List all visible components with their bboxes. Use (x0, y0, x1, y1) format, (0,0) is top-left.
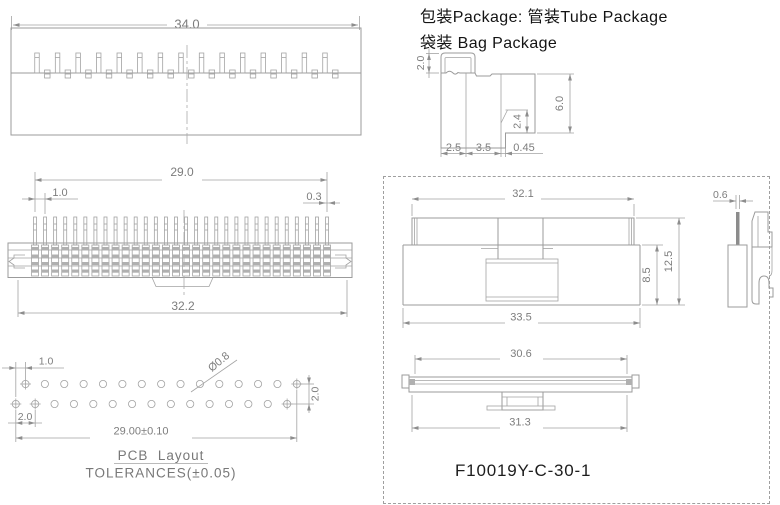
pin-upper (74, 217, 77, 245)
pcb-hole (109, 400, 116, 407)
pin-contact-band (162, 255, 169, 258)
pin-upper (154, 217, 157, 245)
tall-pin (35, 53, 40, 73)
pin-contact-band (32, 262, 39, 265)
pin-upper (285, 217, 288, 245)
pin-upper (44, 217, 47, 245)
pin-contact-band (142, 247, 149, 250)
dim-hole-pitch: 2.0 (18, 411, 33, 423)
tall-pin (220, 53, 225, 73)
pin-upper (104, 217, 107, 245)
pin-contact-band (243, 262, 250, 265)
pin-contact-band (112, 262, 119, 265)
pin-contact-band (203, 262, 210, 265)
dim-arrowhead (568, 74, 572, 81)
dim-arrowhead (13, 23, 20, 27)
pcb-hole (138, 380, 145, 387)
pcb-hole (235, 380, 242, 387)
pin-upper (34, 217, 37, 245)
pin-upper (134, 217, 137, 245)
pin-contact-band (273, 262, 280, 265)
bent-lead (441, 53, 475, 73)
pin-contact-band (102, 262, 109, 265)
pin-contact-band (62, 262, 69, 265)
tall-pin (261, 53, 266, 73)
package-side-view: 2.0 6.0 2.4 2.5 3.5 0.45 (410, 45, 610, 180)
pin-contact-band (213, 255, 220, 258)
front-view-pins (32, 217, 331, 276)
dim-pin-width: 0.3 (306, 191, 321, 203)
pcb-hole (206, 400, 213, 407)
pin-contact-band (72, 255, 79, 258)
pin-contact-band (52, 255, 59, 258)
pin-contact-band (263, 270, 270, 273)
pin-contact-band (32, 255, 39, 258)
pin-upper (124, 217, 127, 245)
pin-contact-band (122, 255, 129, 258)
pin-upper (326, 217, 329, 245)
dim-arrowhead (16, 436, 22, 440)
pin-upper (235, 217, 238, 245)
dim-overall-width: 34.0 (174, 17, 199, 32)
pin-upper (114, 217, 117, 245)
pin-contact-band (213, 262, 220, 265)
pin-contact-band (313, 262, 320, 265)
pcb-hole (51, 400, 58, 407)
pcb-hole (90, 400, 97, 407)
pin-upper (164, 217, 167, 245)
dim-arrowhead (290, 436, 297, 440)
pin-contact-band (293, 262, 300, 265)
pin-contact-band (263, 262, 270, 265)
pcb-hole (245, 400, 252, 407)
pin-upper (225, 217, 228, 245)
pin-contact-band (283, 255, 290, 258)
pin-contact-band (92, 247, 99, 250)
pin-contact-band (142, 270, 149, 273)
tall-pin (117, 53, 122, 73)
pin-contact-band (92, 255, 99, 258)
dim-arrowhead (319, 201, 326, 205)
dim-arrowhead (341, 311, 348, 315)
pin-contact-band (313, 255, 320, 258)
package-text-line2: 袋装 Bag Package (420, 29, 557, 53)
pcb-hole (225, 400, 232, 407)
pin-contact-band (243, 247, 250, 250)
pin-contact-band (223, 262, 230, 265)
pin-contact-band (92, 262, 99, 265)
pin-contact-band (72, 247, 79, 250)
tall-pin (240, 53, 245, 73)
pin-upper (174, 217, 177, 245)
pin-contact-band (52, 262, 59, 265)
tall-pin (323, 53, 328, 73)
pin-contact-band (62, 247, 69, 250)
pin-upper (144, 217, 147, 245)
pin-contact-band (142, 262, 149, 265)
dim-body-width: 32.2 (171, 299, 195, 313)
tall-pin (158, 53, 163, 73)
dim-pin-width: 0.45 (513, 142, 534, 154)
pcb-captions: PCB Layout TOLERANCES(±0.05) (86, 448, 237, 481)
pin-contact-band (152, 247, 159, 250)
pin-contact-band (203, 270, 210, 273)
pin-contact-band (213, 247, 220, 250)
pin-contact-band (203, 255, 210, 258)
pcb-hole (80, 380, 87, 387)
pin-contact-band (42, 262, 49, 265)
bottom-boss (152, 278, 213, 287)
pin-contact-band (162, 262, 169, 265)
pin-contact-band (152, 255, 159, 258)
pin-upper (94, 217, 97, 245)
pin-contact-band (303, 247, 310, 250)
dim-body-height: 6.0 (554, 96, 566, 111)
dim-span-tolerance: 29.00±0.10 (114, 426, 169, 438)
pin-contact-band (273, 247, 280, 250)
tall-pin (179, 53, 184, 73)
dim-span: 29.0 (170, 165, 194, 179)
tall-pin (76, 53, 81, 73)
pin-contact-band (283, 262, 290, 265)
pin-contact-band (223, 255, 230, 258)
top-view-dimension-34: 34.0 (12, 16, 360, 32)
dim-arrowhead (506, 152, 513, 156)
tall-pin (282, 53, 287, 73)
pin-contact-band (52, 247, 59, 250)
tall-pin (55, 53, 60, 73)
pin-contact-band (303, 270, 310, 273)
pin-upper (265, 217, 268, 245)
dim-arrowhead (568, 127, 572, 134)
pin-contact-band (82, 255, 89, 258)
pcb-hole (70, 400, 77, 407)
pin-contact-band (152, 262, 159, 265)
dim-arrowhead (29, 197, 36, 201)
pcb-layout-drawing: 1.0 Ø0.8 2.0 2.0 29.00±0.10 PCB Layout T… (0, 330, 400, 505)
package-text-line1: 包装Package: 管装Tube Package (420, 3, 668, 27)
pcb-layout-caption: PCB Layout (118, 448, 205, 463)
dim-arrowhead (329, 201, 336, 205)
pin-contact-band (183, 255, 190, 258)
pin-contact-band (293, 247, 300, 250)
pin-upper (295, 217, 298, 245)
dim-arrowhead (495, 152, 502, 156)
pin-contact-band (102, 255, 109, 258)
pin-contact-band (62, 255, 69, 258)
pin-contact-band (172, 270, 179, 273)
pcb-hole (274, 380, 281, 387)
tolerance-note: TOLERANCES(±0.05) (86, 466, 237, 481)
pin-contact-band (243, 270, 250, 273)
pin-contact-band (122, 247, 129, 250)
pin-contact-band (253, 255, 260, 258)
pin-contact-band (132, 262, 139, 265)
pin-contact-band (253, 270, 260, 273)
pin-contact-band (253, 247, 260, 250)
pin-contact-band (102, 247, 109, 250)
pin-contact-band (172, 255, 179, 258)
pin-contact-band (162, 247, 169, 250)
pin-upper (275, 217, 278, 245)
pin-contact-band (324, 270, 331, 273)
pin-contact-band (283, 270, 290, 273)
pin-contact-band (193, 247, 200, 250)
pin-contact-band (82, 247, 89, 250)
tall-pin (138, 53, 143, 73)
pin-contact-band (193, 270, 200, 273)
dim-arrowhead (26, 366, 33, 370)
pin-contact-band (233, 247, 240, 250)
pin-contact-band (42, 255, 49, 258)
pin-upper (84, 217, 87, 245)
package-dimensions: 2.0 6.0 2.4 2.5 3.5 0.45 (415, 49, 574, 158)
pin-contact-band (223, 247, 230, 250)
pin-contact-band (132, 255, 139, 258)
pin-upper (54, 217, 57, 245)
pin-contact-band (193, 262, 200, 265)
pin-contact-band (42, 247, 49, 250)
pin-upper (315, 217, 318, 245)
pin-contact-band (132, 247, 139, 250)
pin-contact-band (193, 255, 200, 258)
pin-contact-band (273, 270, 280, 273)
pcb-hole (128, 400, 135, 407)
pcb-hole (187, 400, 194, 407)
dim-arrowhead (427, 54, 431, 61)
pin-upper (305, 217, 308, 245)
dim-arrowhead (460, 152, 467, 156)
pcb-hole (99, 380, 106, 387)
pin-contact-band (203, 247, 210, 250)
pin-upper (215, 217, 218, 245)
dim-arrowhead (321, 178, 328, 182)
pin-contact-band (213, 270, 220, 273)
pcb-hole (254, 380, 261, 387)
dim-arrowhead (525, 110, 529, 117)
pin-contact-band (72, 270, 79, 273)
pin-contact-band (233, 270, 240, 273)
pin-contact-band (172, 247, 179, 250)
dim-arrowhead (352, 23, 359, 27)
pcb-hole (148, 400, 155, 407)
front-dimensions: 29.0 1.0 0.3 32.2 (18, 165, 347, 317)
pin-contact-band (283, 247, 290, 250)
top-view-pins (35, 53, 338, 78)
pin-contact-band (42, 270, 49, 273)
pin-contact-band (223, 270, 230, 273)
pin-upper (185, 217, 188, 245)
pin-contact-band (183, 262, 190, 265)
pin-contact-band (293, 255, 300, 258)
dim-arrowhead (9, 366, 16, 370)
pcb-hole (177, 380, 184, 387)
pin-contact-band (112, 247, 119, 250)
tall-pin (199, 53, 204, 73)
dim-arrowhead (441, 152, 448, 156)
front-view-drawing: 29.0 1.0 0.3 32.2 (0, 150, 400, 330)
pin-upper (255, 217, 258, 245)
pin-contact-band (233, 255, 240, 258)
connector-outline (11, 28, 361, 135)
pin-contact-band (183, 247, 190, 250)
detail-boundary-box (383, 176, 770, 504)
pcb-hole (61, 380, 68, 387)
pin-contact-band (32, 247, 39, 250)
dim-tip-height: 2.4 (512, 114, 524, 129)
pcb-hole (264, 400, 271, 407)
top-view-drawing: 34.0 (0, 0, 400, 160)
pin-contact-band (324, 247, 331, 250)
pcb-hole (216, 380, 223, 387)
pin-contact-band (183, 270, 190, 273)
drawing-canvas: 34.0 29.0 1.0 0.3 32.2 (0, 0, 780, 505)
pin-contact-band (32, 270, 39, 273)
pin-contact-band (313, 270, 320, 273)
pcb-holes (10, 379, 302, 410)
pcb-dimensions: 1.0 Ø0.8 2.0 2.0 29.00±0.10 (2, 350, 322, 442)
pin-contact-band (172, 262, 179, 265)
pin-contact-band (263, 247, 270, 250)
pin-contact-band (152, 270, 159, 273)
dim-arrowhead (427, 67, 431, 74)
pin-contact-band (253, 262, 260, 265)
pin-contact-band (112, 270, 119, 273)
pin-contact-band (62, 270, 69, 273)
pcb-hole (41, 380, 48, 387)
package-body (441, 71, 535, 148)
pin-contact-band (82, 262, 89, 265)
pcb-hole (158, 380, 165, 387)
pin-contact-band (132, 270, 139, 273)
pin-upper (195, 217, 198, 245)
pin-upper (205, 217, 208, 245)
dim-pitch: 1.0 (52, 187, 67, 199)
pin-contact-band (102, 270, 109, 273)
pin-contact-band (112, 255, 119, 258)
pin-contact-band (243, 255, 250, 258)
pin-contact-band (72, 262, 79, 265)
dim-arrowhead (35, 178, 42, 182)
pcb-hole (167, 400, 174, 407)
pin-contact-band (293, 270, 300, 273)
pin-contact-band (324, 255, 331, 258)
pin-upper (245, 217, 248, 245)
dim-arrowhead (307, 404, 311, 411)
tall-pin (96, 53, 101, 73)
pin-upper (64, 217, 67, 245)
pin-contact-band (52, 270, 59, 273)
tall-pin (302, 53, 307, 73)
pin-contact-band (273, 255, 280, 258)
pin-contact-band (233, 262, 240, 265)
pin-contact-band (162, 270, 169, 273)
dim-arrowhead (525, 127, 529, 134)
dim-row-spacing: 2.0 (310, 387, 322, 402)
pin-contact-band (92, 270, 99, 273)
pin-contact-band (324, 262, 331, 265)
dim-arrowhead (307, 378, 311, 385)
pin-contact-band (313, 247, 320, 250)
pin-contact-band (122, 262, 129, 265)
dim-arrowhead (466, 152, 473, 156)
pin-contact-band (263, 255, 270, 258)
pin-contact-band (122, 270, 129, 273)
dim-arrowhead (18, 311, 25, 315)
pcb-hole (119, 380, 126, 387)
dim-hole-diameter: Ø0.8 (206, 350, 232, 375)
pin-contact-band (82, 270, 89, 273)
pin-contact-band (303, 262, 310, 265)
pin-contact-band (303, 255, 310, 258)
pin-contact-band (142, 255, 149, 258)
dim-row-offset: 1.0 (39, 356, 54, 368)
dim-lead-height: 2.0 (415, 56, 427, 71)
dim-arrowhead (45, 197, 52, 201)
